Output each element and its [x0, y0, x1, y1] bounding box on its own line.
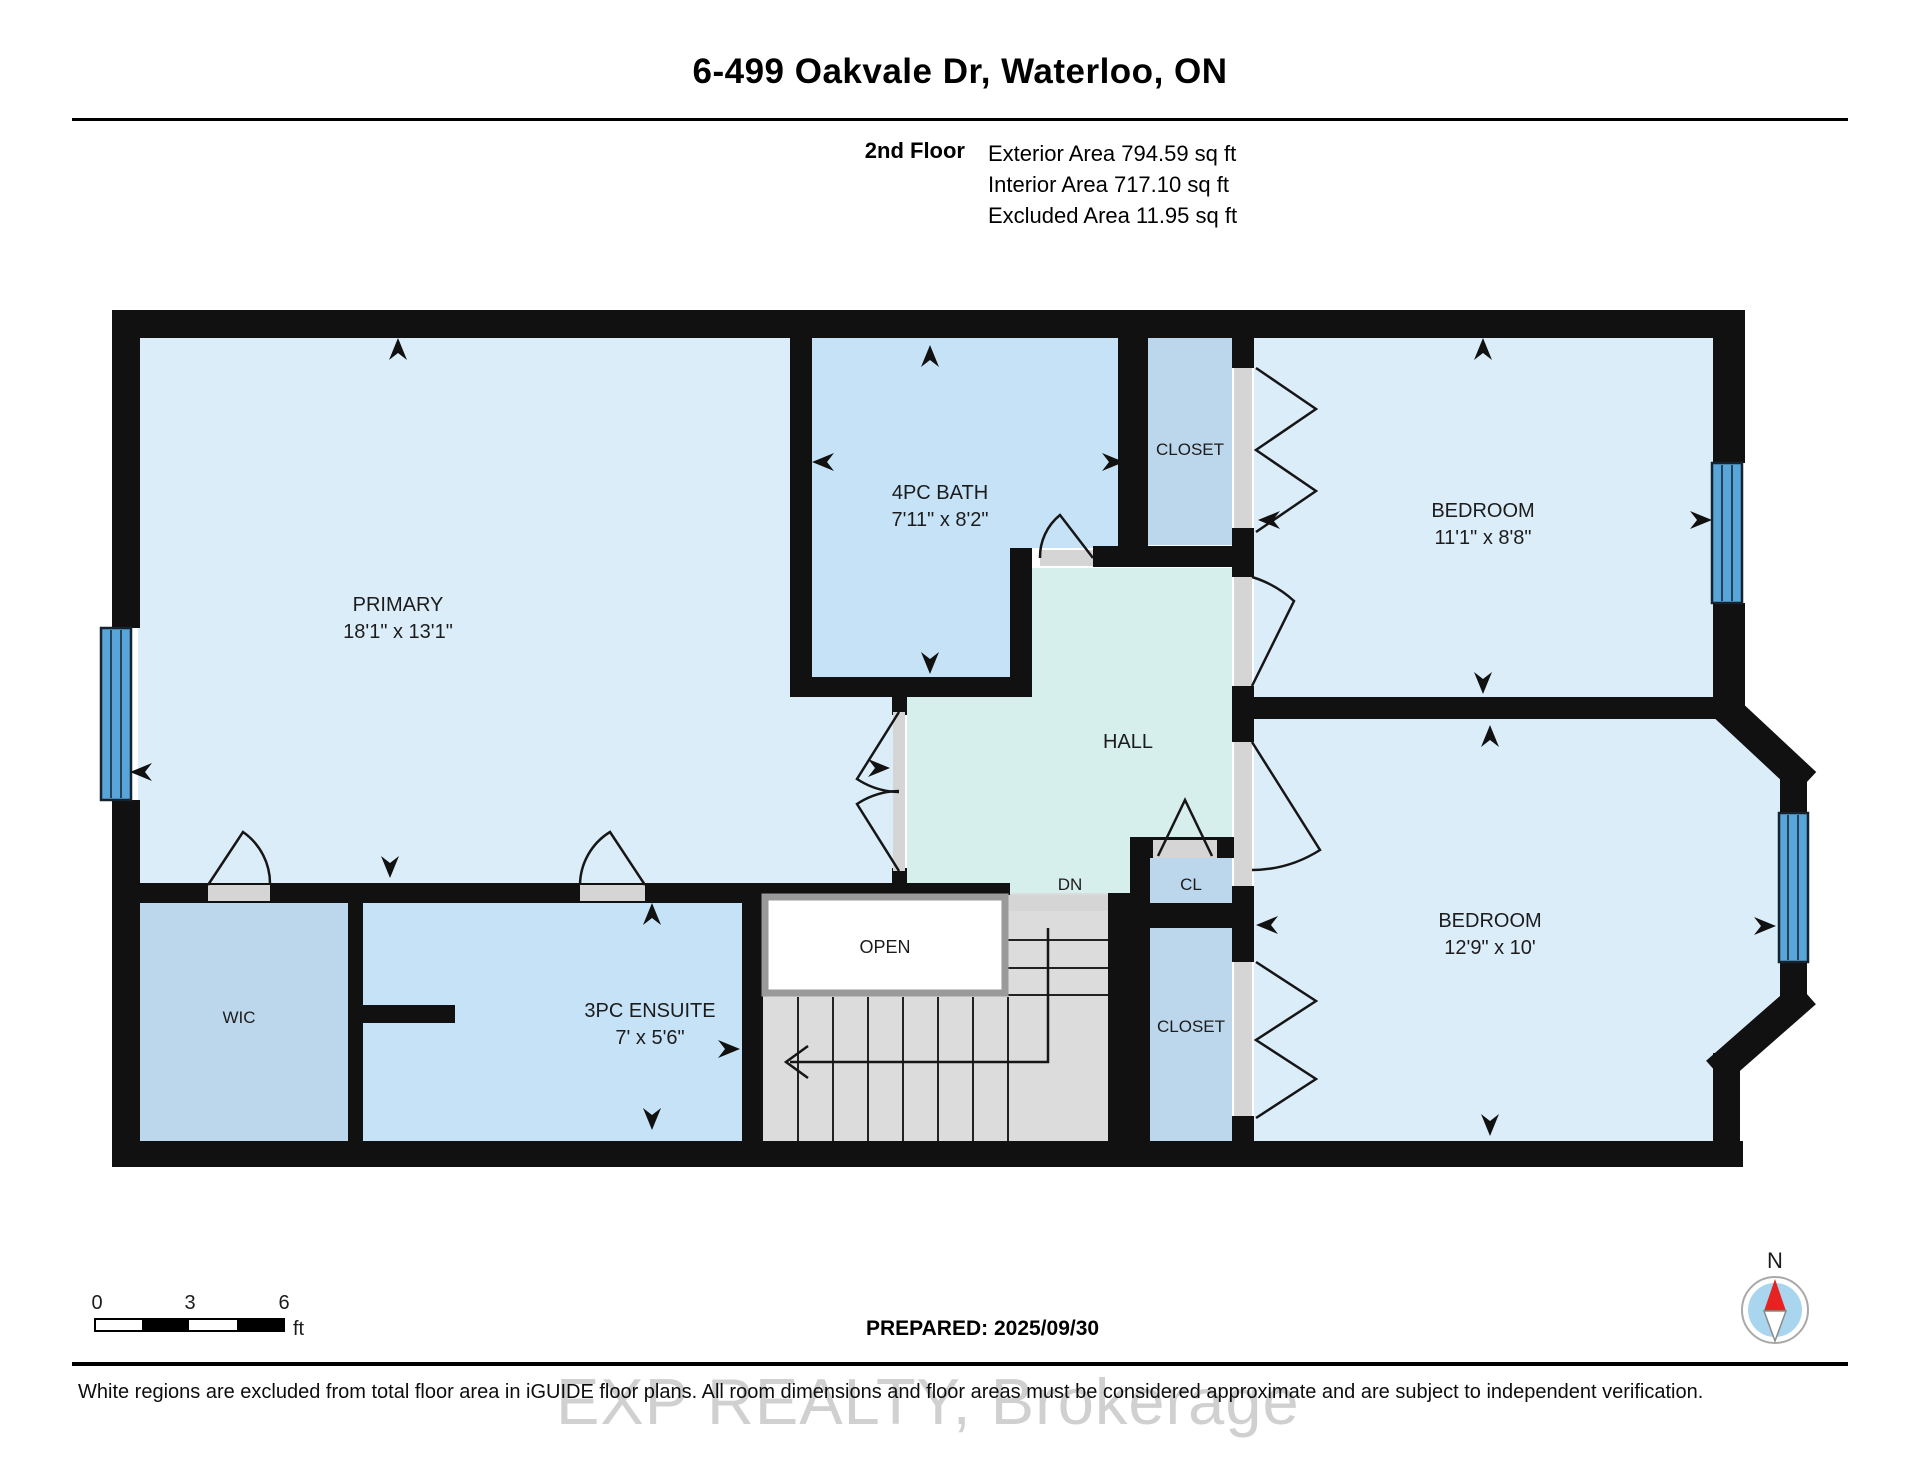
room-cl-label: CL	[1180, 875, 1202, 894]
page-title: 6-499 Oakvale Dr, Waterloo, ON	[0, 52, 1920, 92]
room-bath-label: 4PC BATH	[892, 482, 988, 504]
floor-label: 2nd Floor	[700, 138, 965, 164]
prepared-date: PREPARED: 2025/09/30	[866, 1317, 1099, 1341]
room-ensuite-label: 3PC ENSUITE	[584, 1000, 715, 1022]
scale-tick-3: 3	[184, 1293, 195, 1314]
room-closet-bottom-label: CLOSET	[1157, 1017, 1225, 1036]
scale-tick-0: 0	[91, 1293, 102, 1314]
scale-bar-segment	[237, 1319, 284, 1331]
room-hall-label: HALL	[1103, 731, 1153, 753]
floor-plan-svg: PRIMARY 18'1" x 13'1" 4PC BATH 7'11" x 8…	[0, 280, 1920, 1200]
room-bedroom1-label: BEDROOM	[1431, 500, 1534, 522]
room-wic-label: WIC	[222, 1008, 255, 1027]
room-primary-dims: 18'1" x 13'1"	[343, 621, 453, 643]
stairs-dn-label: DN	[1058, 875, 1083, 894]
room-bedroom2-dims: 12'9" x 10'	[1444, 937, 1535, 959]
floor-plan-page: 6-499 Oakvale Dr, Waterloo, ON 2nd Floor…	[0, 0, 1920, 1484]
interior-area: Interior Area 717.10 sq ft	[988, 169, 1237, 200]
window-bedroom2-bay	[1779, 813, 1808, 962]
header-divider	[72, 118, 1848, 121]
area-summary: Exterior Area 794.59 sq ft Interior Area…	[988, 138, 1237, 231]
room-bedroom2-label: BEDROOM	[1438, 910, 1541, 932]
room-primary-fill	[138, 338, 893, 883]
scale-unit: ft	[293, 1318, 305, 1340]
room-bath-dims: 7'11" x 8'2"	[891, 509, 988, 531]
compass-icon: N	[1737, 1248, 1813, 1348]
compass-n-label: N	[1767, 1248, 1783, 1273]
room-ensuite-dims: 7' x 5'6"	[615, 1027, 684, 1049]
room-primary-label: PRIMARY	[353, 594, 444, 616]
disclaimer-text: White regions are excluded from total fl…	[78, 1381, 1703, 1404]
room-closet-top-label: CLOSET	[1156, 440, 1224, 459]
window-primary	[101, 628, 131, 800]
room-bedroom1-dims: 11'1" x 8'8"	[1434, 527, 1531, 549]
scale-bar: 0 3 6 ft	[88, 1293, 408, 1348]
scale-bar-segment	[142, 1319, 189, 1331]
exterior-area: Exterior Area 794.59 sq ft	[988, 138, 1237, 169]
excluded-area: Excluded Area 11.95 sq ft	[988, 200, 1237, 231]
window-bedroom1	[1712, 463, 1742, 603]
scale-tick-6: 6	[278, 1293, 289, 1314]
open-label: OPEN	[859, 937, 910, 957]
